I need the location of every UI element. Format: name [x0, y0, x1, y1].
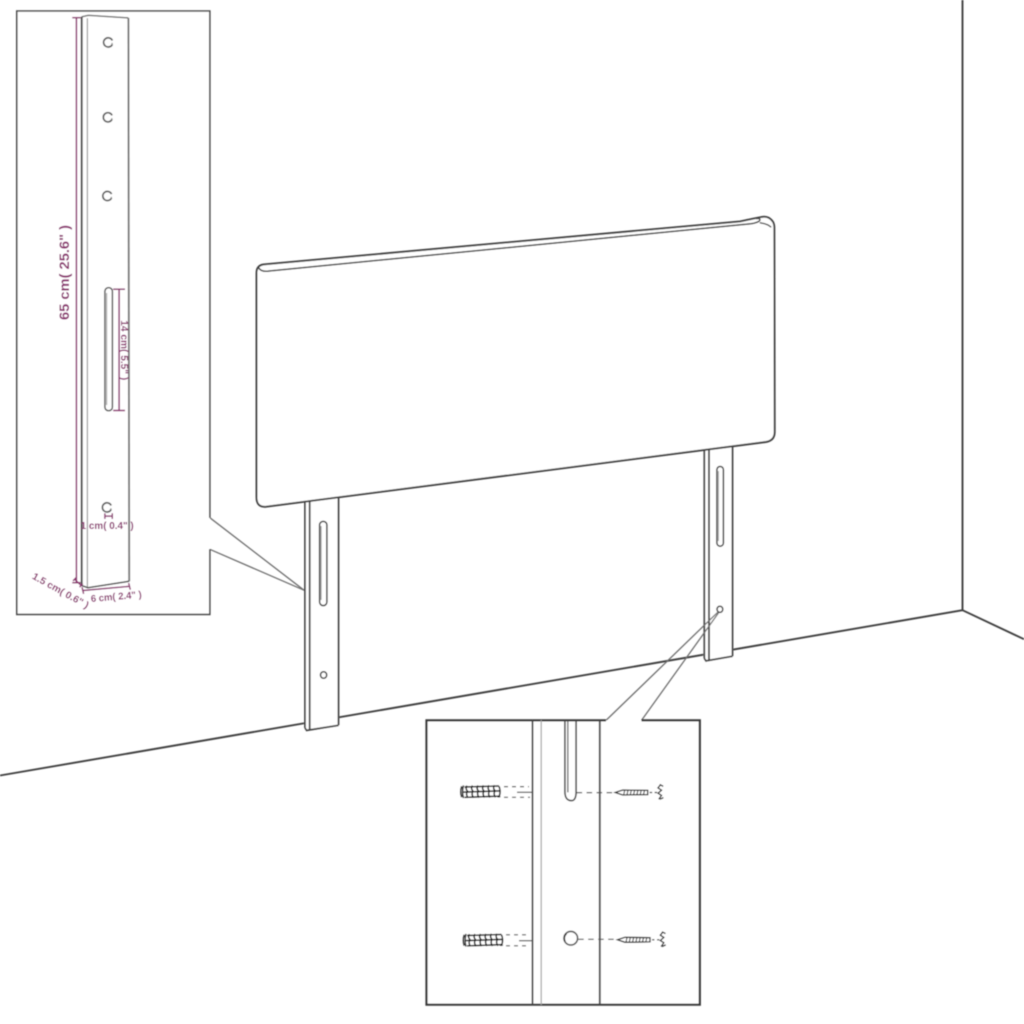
svg-text:65 cm( 25.6" ): 65 cm( 25.6" ) [57, 225, 72, 320]
svg-text:14 cm( 5.5" ): 14 cm( 5.5" ) [118, 320, 129, 380]
svg-text:1 cm( 0.4" ): 1 cm( 0.4" ) [81, 521, 134, 532]
